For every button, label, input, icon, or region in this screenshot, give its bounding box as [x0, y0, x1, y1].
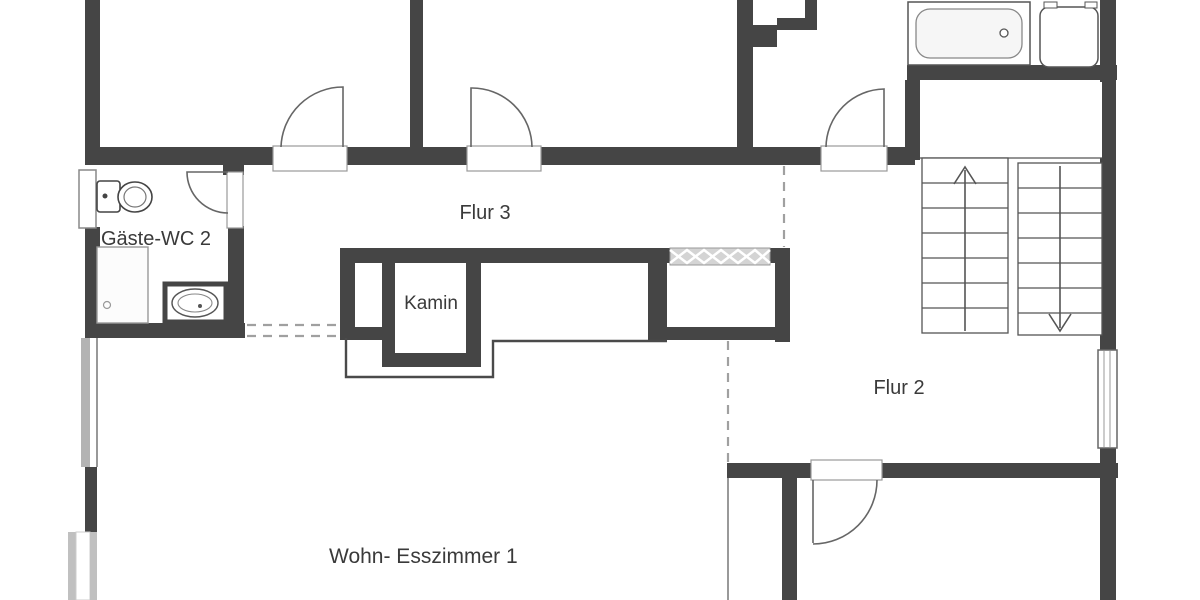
wall-fireplace-left	[340, 248, 355, 340]
room-label-fireplace: Kamin	[394, 294, 468, 315]
wall-fireplace-north	[340, 248, 670, 263]
vent-hatch	[670, 248, 770, 265]
room-label-hallway2: Flur 2	[856, 377, 942, 399]
floor-plan: Gäste-WC 2 Flur 3 Kamin Flur 2 Wohn- Ess…	[0, 0, 1200, 600]
staircase	[920, 82, 1102, 335]
toilet-flush-dot	[103, 194, 108, 199]
wall-bath-niche-c	[748, 25, 777, 47]
door-leaf-room2	[467, 146, 541, 171]
wall-fireplace-bottom	[382, 353, 481, 367]
wall-bath-niche-b	[777, 18, 817, 30]
window-living-left2-frame-b	[90, 532, 97, 600]
room-label-living-dining: Wohn- Esszimmer 1	[329, 545, 518, 568]
wall-wc-south	[85, 323, 245, 338]
toilet-tank	[97, 181, 120, 212]
room-label-hallway3: Flur 3	[443, 202, 527, 224]
shower-base-wc	[97, 247, 148, 323]
washbasin	[172, 289, 218, 317]
door-leaf-bottomroom	[811, 460, 882, 480]
window-living-left-frame	[81, 338, 90, 467]
room-label-guest-wc: Gäste-WC 2	[101, 228, 211, 250]
door-leaf-bathroom	[821, 146, 887, 171]
door-swing-bottomroom	[813, 480, 877, 544]
shower-tray	[1040, 7, 1098, 67]
wall-shaft-bottom	[667, 327, 775, 340]
wall-hall3-north-c	[540, 147, 822, 165]
window-hall2-right	[1098, 350, 1117, 448]
wall-exterior-left-lower	[85, 467, 97, 532]
wall-exterior-left-top	[85, 0, 100, 165]
shower-fitting-left	[1044, 2, 1057, 8]
door-swing-wc	[187, 172, 228, 213]
door-swing-room1	[281, 87, 343, 147]
guest-wc-fixtures	[97, 181, 226, 323]
window-living-left2-frame-a	[68, 532, 76, 600]
door-swing-room2	[471, 88, 532, 147]
bathroom-fixtures	[908, 2, 1098, 67]
shower-fitting-right	[1085, 2, 1097, 8]
wall-fireplace-slot-bottom	[355, 327, 382, 340]
wall-hall3-north-a	[100, 147, 274, 165]
wall-hall2-south-a	[727, 463, 812, 478]
floor-plan-drawing	[0, 0, 1200, 600]
window-living-left-glass	[90, 338, 97, 467]
window-living-left2-glass	[76, 532, 90, 600]
wall-shaft-right	[775, 250, 790, 342]
wall-room-divider-1	[410, 0, 423, 147]
window-wc-left	[79, 170, 96, 228]
wall-shaft-left	[648, 250, 667, 340]
wall-room-divider-2	[737, 0, 753, 147]
door-leaf-wc	[227, 172, 243, 228]
wall-fireplace-inner-left	[382, 263, 395, 367]
door-leaf-room1	[273, 146, 347, 171]
door-swing-bathroom	[826, 89, 884, 147]
stair-landing	[920, 82, 1102, 158]
wall-hall3-north-b	[347, 147, 467, 165]
bathtub-drain	[1000, 29, 1008, 37]
washbasin-drain	[198, 304, 202, 308]
wall-fireplace-inner-right	[466, 263, 481, 367]
wall-wc-right	[228, 226, 244, 338]
wall-bottomroom-left	[782, 478, 797, 600]
wall-hall2-south-b	[882, 463, 1118, 478]
wall-stairwell-left	[905, 80, 920, 160]
